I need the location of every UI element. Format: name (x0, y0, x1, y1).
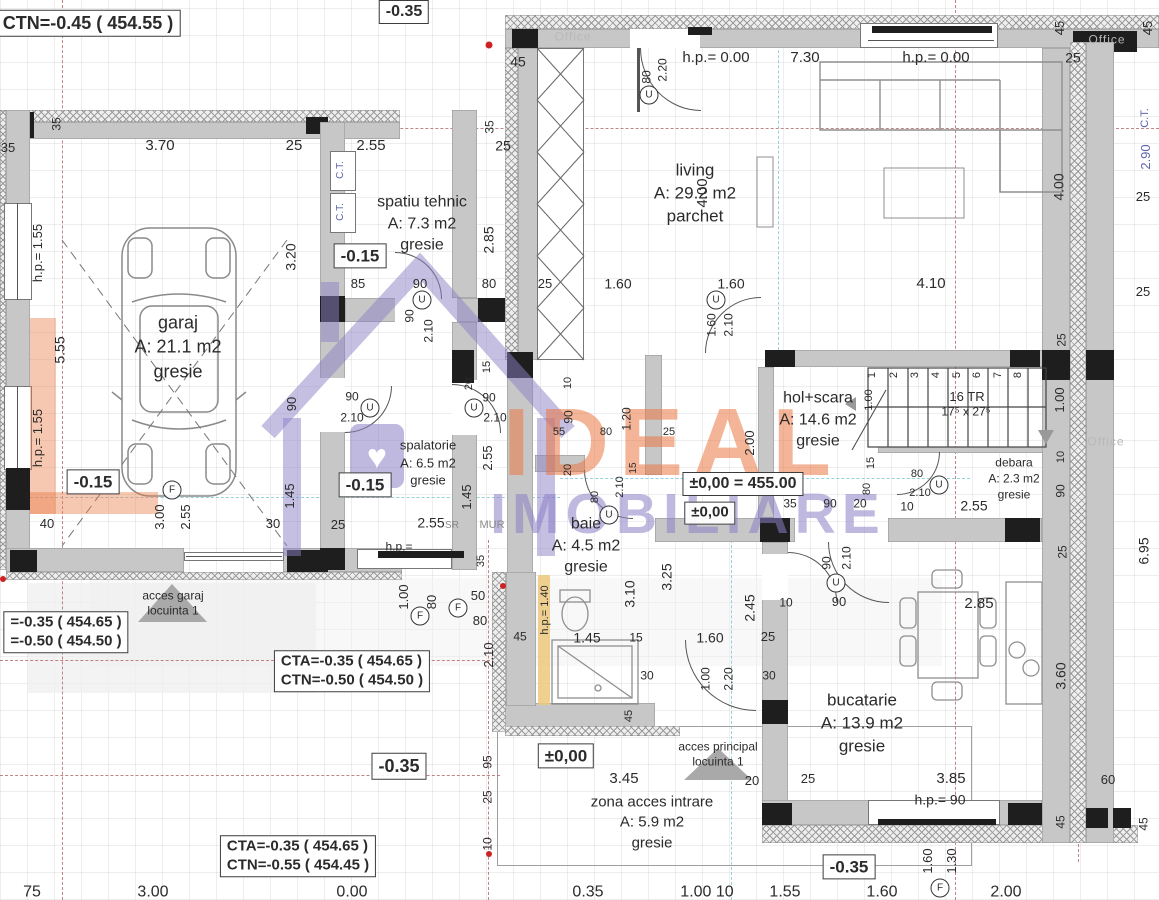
dim-label: 90 (413, 277, 427, 291)
dim-label: 7 (993, 372, 1005, 378)
room-name: spalatorie (400, 437, 456, 455)
dim-label: locuinta 1 (147, 605, 198, 618)
dim-label: 8 (1013, 372, 1025, 378)
elevation-box: =-0.35 ( 454.65 )=-0.50 ( 454.50 ) (3, 611, 128, 653)
dim-label: 35 (484, 120, 497, 133)
dim-label: 90 (482, 392, 495, 405)
dim-label: SR (445, 521, 459, 532)
elevation-box: ±0,00 (684, 502, 735, 525)
dim-label: 80 (911, 469, 923, 481)
elevation-text: ±0,00 (545, 745, 587, 766)
elevation-box: -0.35 (379, 0, 429, 24)
room-label: zona acces intrareA: 5.9 m2gresie (591, 793, 714, 854)
dim-label: 80 (482, 277, 496, 291)
elevation-box: ±0,00 = 455.00 (682, 472, 803, 496)
dim-label: 6.95 (1137, 537, 1152, 564)
dim-label: 20 (745, 774, 759, 788)
dim-label: 2.10 (909, 488, 930, 500)
dim-label: 4.00 (1052, 173, 1067, 200)
dim-label: 25 (1057, 545, 1070, 558)
dim-label: 1.60 (717, 277, 744, 292)
dim-label: 3.00 (153, 504, 167, 529)
dim-label: 90 (1055, 484, 1068, 497)
dim-label: 30 (640, 670, 653, 683)
dim-label: 10 (563, 377, 575, 389)
dim-label: h.p.= 1.55 (31, 409, 45, 467)
room-name: living (654, 160, 736, 183)
room-area: A: 7.3 m2 (377, 213, 467, 235)
room-label: bucatarieA: 13.9 m2gresie (821, 690, 903, 759)
dim-label: 3.00 (137, 885, 168, 900)
elevation-box: -0.15 (339, 472, 392, 497)
room-floor-finish: parchet (654, 205, 736, 228)
dim-label: 1.55 (769, 885, 800, 900)
dim-label: h.p.= 0.00 (902, 50, 969, 66)
elevation-text: ±0,00 = 455.00 (689, 474, 796, 494)
dim-label: 15 (866, 457, 878, 469)
dim-label: 3.25 (660, 563, 675, 590)
dim-label: 15 (482, 361, 494, 373)
door-marker: U (640, 86, 659, 105)
dim-label: 25 (1065, 51, 1081, 66)
elevation-text: -0.35 (378, 755, 419, 778)
dim-label: h.p.= 1.40 (540, 585, 552, 634)
dim-label: 1.00 10 (680, 885, 733, 900)
dim-label: 45 (1055, 815, 1068, 828)
room-area: A: 4.5 m2 (552, 535, 620, 557)
dim-label: 80 (862, 483, 874, 495)
dim-label: 90 (563, 410, 576, 423)
room-label: spatiu tehnicA: 7.3 m2gresie (377, 192, 467, 257)
dim-label: C.T. (1140, 108, 1152, 128)
dim-label: 25 (482, 790, 495, 803)
dim-label: 3.45 (609, 771, 638, 787)
dim-label: 3.70 (145, 138, 174, 154)
axis-marker: F (411, 607, 430, 626)
dim-label: 15 (629, 632, 642, 645)
floor-plan-canvas: ♥ IDEAL IMOBILIARE 353.70252.55253535458… (0, 0, 1159, 900)
dim-label: 30 (762, 670, 775, 683)
dim-label: acces garaj (142, 590, 203, 603)
dim-label: 1.60 (696, 631, 723, 646)
door-marker: U (827, 574, 846, 593)
dim-label: 5 (952, 372, 964, 378)
dim-label: 4 (931, 372, 943, 378)
room-floor-finish: gresie (552, 557, 620, 579)
dim-label: 25 (801, 772, 815, 786)
dim-label: 90 (821, 556, 834, 569)
room-name: bucatarie (821, 690, 903, 713)
dim-label: 95 (482, 755, 495, 768)
dim-label: 90 (345, 391, 358, 404)
dim-label: 1.60 (921, 848, 935, 873)
room-floor-finish: gresie (134, 359, 221, 383)
axis-marker: F (449, 599, 468, 618)
dim-label: 2.00 (990, 885, 1021, 900)
dim-label: 45 (510, 55, 526, 70)
dim-label: 20 (464, 378, 476, 390)
dim-label: 80 (590, 491, 602, 503)
dim-label: 90 (285, 397, 299, 411)
room-label: spalatorieA: 6.5 m2gresie (400, 437, 456, 490)
elevation-text: CTA=-0.35 ( 454.65 ) (281, 652, 423, 671)
dim-label: 25 (1136, 285, 1150, 299)
dim-label: 45 (1053, 21, 1067, 35)
axis-marker: F (931, 879, 950, 898)
dim-label: 0.00 (336, 885, 367, 900)
dim-label: 1.00 (864, 389, 876, 410)
dim-label: 2.20 (723, 667, 736, 690)
room-area: A: 2.3 m2 (988, 471, 1039, 487)
dim-label: 35 (783, 498, 796, 511)
dim-label: 90 (823, 498, 836, 511)
dim-label: 1.30 (945, 848, 959, 873)
dim-label: MUR (479, 520, 504, 532)
room-area: A: 29.2 m2 (654, 183, 736, 206)
dim-label: 1.60 (866, 885, 897, 900)
dim-label: 10 (482, 837, 495, 850)
elevation-text: CTN=-0.45 ( 454.55 ) (3, 12, 174, 35)
dim-label: 2.55 (179, 504, 193, 529)
dim-label: 3 (910, 372, 922, 378)
dim-label: 60 (1101, 773, 1115, 787)
dim-label: 2.55 (481, 445, 495, 470)
dim-label: 45 (1138, 817, 1151, 830)
elevation-text: -0.35 (830, 856, 869, 877)
dim-label: 1.00 (397, 584, 411, 609)
elevation-box: -0.35 (371, 753, 426, 780)
elevation-text: -0.35 (386, 2, 422, 22)
door-marker: U (930, 476, 949, 495)
dim-label: 30 (266, 517, 280, 531)
dim-label: 3.60 (1054, 662, 1069, 689)
room-label: livingA: 29.2 m2parchet (654, 160, 736, 229)
axis-marker: F (163, 481, 182, 500)
dim-label: 3.10 (623, 580, 638, 607)
dim-label: 1 (867, 372, 879, 378)
dim-label: 2.10 (723, 313, 736, 336)
dim-label: 35 (476, 555, 488, 567)
room-label: hol+scaraA: 14.6 m2gresie (779, 388, 856, 453)
watermark-office-text: Office (1088, 34, 1125, 47)
dim-label: 2.85 (964, 596, 993, 612)
room-floor-finish: gresie (988, 487, 1039, 503)
dim-label: 0.35 (572, 885, 603, 900)
dim-label: 1.60 (604, 277, 631, 292)
labels-layer: 353.70252.5525353545802.20h.p.= 0.007.30… (0, 0, 1159, 900)
elevation-text: ±0,00 (691, 504, 728, 523)
dim-label: 1.45 (283, 483, 297, 508)
elevation-box: ±0,00 (538, 743, 594, 768)
dim-label: 2.00 (743, 430, 757, 455)
dim-label: 25 (1136, 190, 1150, 204)
elevation-text: CTN=-0.55 ( 454.45 ) (227, 856, 369, 875)
elevation-box: -0.35 (823, 854, 876, 879)
dim-label: 16 TR (949, 390, 984, 404)
dim-label: 7.30 (790, 50, 819, 66)
dim-label: C.T. (336, 203, 347, 221)
room-floor-finish: gresie (821, 735, 903, 758)
dim-label: 25 (761, 630, 775, 644)
door-marker: U (465, 399, 484, 418)
dim-label: 2.10 (482, 642, 496, 667)
room-area: A: 6.5 m2 (400, 454, 456, 472)
dim-label: h.p.= (385, 541, 412, 554)
dim-label: 25 (331, 518, 345, 532)
room-name: zona acces intrare (591, 793, 714, 813)
door-marker: U (413, 291, 432, 310)
elevation-text: CTN=-0.50 ( 454.50 ) (281, 671, 423, 690)
elevation-box: -0.15 (67, 469, 120, 494)
dim-label: 25 (1056, 333, 1069, 346)
room-label: debaraA: 2.3 m2gresie (988, 455, 1039, 504)
dim-label: 35 (1, 141, 15, 155)
elevation-box: CTN=-0.45 ( 454.55 ) (0, 10, 180, 37)
dim-label: 85 (351, 277, 365, 291)
dim-label: 2.20 (657, 58, 670, 81)
dim-label: 75 (23, 885, 41, 900)
door-marker: U (600, 506, 619, 525)
dim-label: 45 (513, 631, 526, 644)
elevation-text: -0.15 (346, 474, 385, 495)
dim-label: 1.00 (700, 667, 713, 690)
elevation-box: CTA=-0.35 ( 454.65 )CTN=-0.50 ( 454.50 ) (274, 650, 430, 692)
dim-label: 2.10 (423, 319, 436, 342)
dim-label: 1.20 (621, 407, 634, 430)
dim-label: 15 (629, 462, 640, 473)
room-area: A: 13.9 m2 (821, 713, 903, 736)
dim-label: 2.55 (960, 499, 987, 514)
room-name: hol+scara (779, 388, 856, 410)
dim-label: 17⁵ x 27⁵ (941, 406, 990, 419)
dim-label: 25 (538, 277, 552, 291)
dim-label: 2.10 (340, 412, 363, 425)
room-area: A: 5.9 m2 (591, 813, 714, 833)
dim-label: 20 (563, 464, 575, 476)
room-floor-finish: gresie (591, 833, 714, 853)
elevation-text: CTA=-0.35 ( 454.65 ) (227, 837, 369, 856)
dim-label: 10 (779, 597, 792, 610)
dim-label: h.p.= 0.00 (682, 50, 749, 66)
dim-label: 55 (553, 427, 565, 439)
dim-label: 80 (473, 614, 487, 628)
dim-label: 1.00 (1053, 387, 1067, 412)
room-area: A: 21.1 m2 (134, 335, 221, 359)
dim-label: C.T. (336, 161, 347, 179)
dim-label: 2.55 (356, 138, 385, 154)
elevation-text: -0.15 (74, 471, 113, 492)
dim-label: h.p.= 90 (915, 793, 966, 808)
dim-label: 90 (832, 595, 846, 609)
dim-label: h.p.= 1.55 (31, 224, 45, 282)
watermark-office-text: Office (1087, 436, 1124, 449)
dim-label: 4.10 (916, 276, 945, 292)
dim-label: 45 (1141, 21, 1155, 35)
room-name: garaj (134, 311, 221, 335)
dim-label: 2.90 (1139, 144, 1153, 169)
dim-label: 1.60 (706, 313, 719, 336)
dim-label: 25 (495, 139, 511, 154)
dim-label: 2 (889, 372, 901, 378)
room-name: debara (988, 455, 1039, 471)
elevation-text: =-0.50 ( 454.50 ) (10, 632, 121, 651)
door-marker: U (707, 291, 726, 310)
dim-label: 1.45 (573, 631, 600, 646)
dim-label: 25 (663, 427, 675, 439)
dim-label: 2.10 (615, 476, 627, 497)
room-area: A: 14.6 m2 (779, 409, 856, 431)
dim-label: 2.45 (743, 594, 758, 621)
dim-label: 80 (425, 595, 439, 609)
dim-label: 25 (286, 138, 303, 154)
dim-label: 3.85 (936, 771, 965, 787)
room-floor-finish: gresie (377, 235, 467, 257)
dim-label: 6 (972, 372, 984, 378)
room-name: spatiu tehnic (377, 192, 467, 214)
dim-label: 1.45 (460, 484, 474, 509)
dim-label: 10 (900, 501, 913, 514)
dim-label: 80 (600, 427, 612, 439)
dim-label: 5.55 (53, 336, 68, 363)
dim-label: acces principal (678, 741, 757, 754)
room-floor-finish: gresie (779, 431, 856, 453)
door-marker: U (361, 399, 380, 418)
room-label: garajA: 21.1 m2gresie (134, 311, 221, 384)
watermark-office-text: Office (554, 31, 591, 44)
dim-label: 2.10 (841, 546, 854, 569)
dim-label: 45 (624, 710, 636, 722)
dim-label: 3.20 (284, 243, 299, 270)
dim-label: 10 (1056, 451, 1068, 463)
dim-label: 40 (40, 517, 54, 531)
dim-label: 20 (853, 498, 866, 511)
elevation-box: CTA=-0.35 ( 454.65 )CTN=-0.55 ( 454.45 ) (220, 835, 376, 877)
dim-label: 90 (404, 309, 417, 322)
elevation-text: =-0.35 ( 454.65 ) (10, 613, 121, 632)
dim-label: 2.10 (483, 412, 506, 425)
dim-label: 2.55 (417, 516, 444, 531)
dim-label: 50 (471, 589, 485, 603)
room-floor-finish: gresie (400, 472, 456, 490)
dim-label: 35 (51, 117, 64, 130)
dim-label: 2.85 (482, 226, 497, 253)
dim-label: locuinta 1 (692, 756, 743, 769)
elevation-text: -0.15 (341, 245, 380, 266)
dim-label: 80 (641, 70, 654, 83)
